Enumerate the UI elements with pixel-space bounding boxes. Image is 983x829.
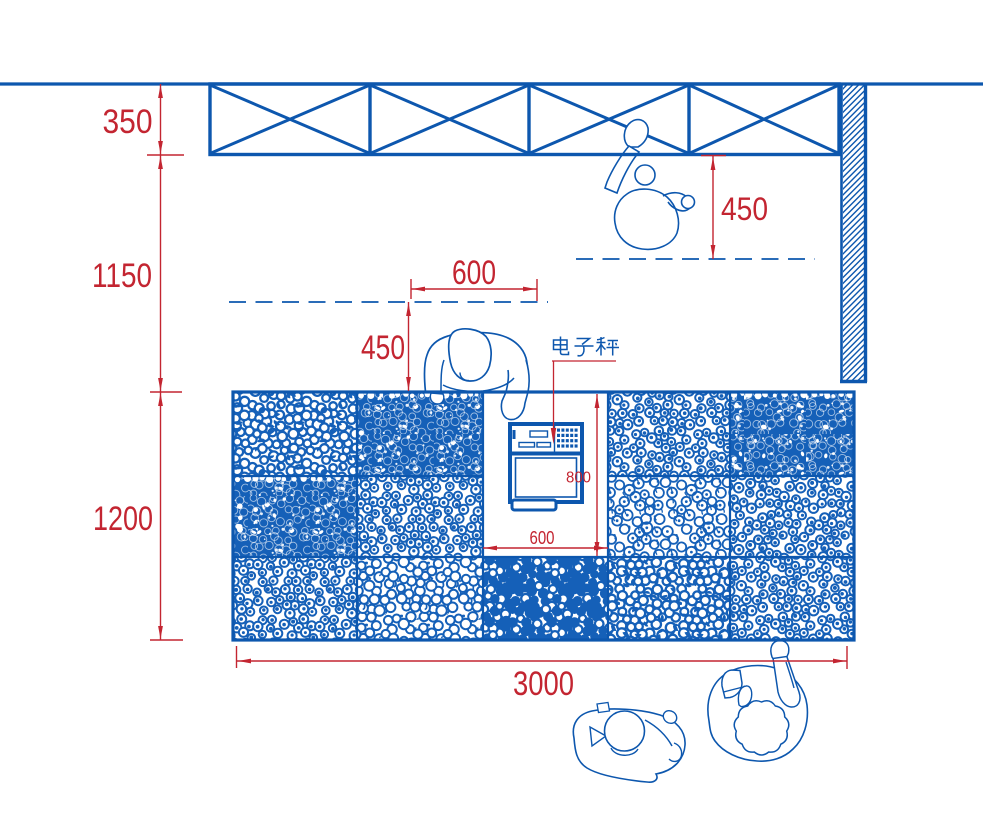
svg-text:800: 800 xyxy=(566,470,591,487)
svg-text:600: 600 xyxy=(452,254,496,292)
svg-text:450: 450 xyxy=(361,329,405,367)
svg-text:3000: 3000 xyxy=(513,665,574,703)
svg-text:1150: 1150 xyxy=(92,257,152,295)
svg-text:600: 600 xyxy=(530,528,555,548)
svg-text:450: 450 xyxy=(721,191,768,227)
svg-text:1200: 1200 xyxy=(93,500,153,538)
svg-text:350: 350 xyxy=(103,103,153,141)
